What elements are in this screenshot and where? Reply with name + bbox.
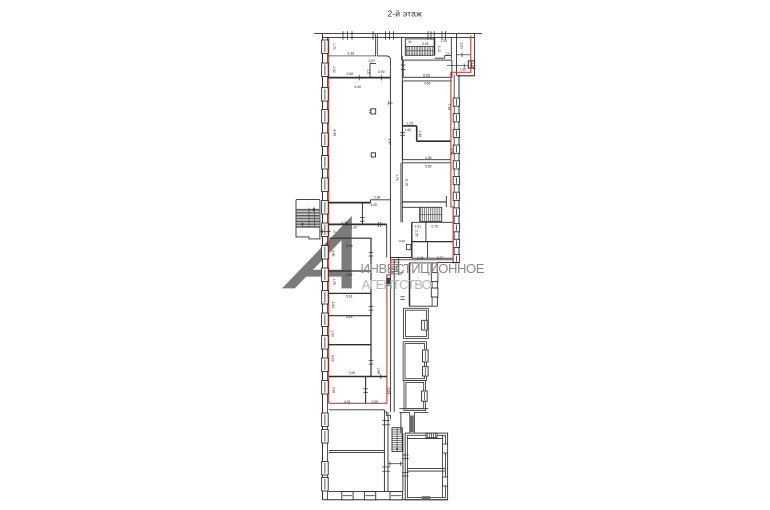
svg-text:4.51: 4.51	[344, 400, 351, 404]
svg-text:9.47: 9.47	[387, 138, 391, 145]
svg-text:3.26: 3.26	[370, 203, 377, 207]
svg-text:6.59: 6.59	[425, 165, 432, 169]
svg-text:3.24: 3.24	[386, 388, 390, 395]
svg-text:1.25: 1.25	[440, 39, 447, 43]
svg-text:1.5: 1.5	[366, 69, 370, 74]
svg-text:5.82: 5.82	[346, 273, 353, 277]
svg-text:1.46: 1.46	[417, 256, 424, 260]
svg-text:6.40: 6.40	[354, 85, 361, 89]
svg-text:3.03: 3.03	[422, 42, 429, 46]
svg-text:3.77: 3.77	[437, 256, 444, 260]
svg-text:2-й этаж: 2-й этаж	[387, 8, 422, 18]
svg-text:1.61: 1.61	[415, 224, 422, 228]
svg-text:0.57: 0.57	[369, 59, 376, 63]
svg-text:ИНВЕСТИЦИОННОЕ: ИНВЕСТИЦИОННОЕ	[361, 261, 485, 276]
svg-text:8.86: 8.86	[346, 244, 353, 248]
svg-text:0.90: 0.90	[378, 70, 385, 74]
svg-text:1.29: 1.29	[406, 121, 413, 125]
svg-text:1.60: 1.60	[405, 128, 412, 132]
svg-text:6.38: 6.38	[348, 52, 355, 56]
svg-text:1.52: 1.52	[332, 66, 336, 73]
svg-text:5.63: 5.63	[346, 315, 353, 319]
svg-text:2.96: 2.96	[450, 149, 454, 156]
svg-text:3.90: 3.90	[332, 387, 336, 394]
svg-text:1x: 1x	[446, 51, 450, 55]
svg-text:2.88: 2.88	[371, 400, 378, 404]
svg-text:2.12: 2.12	[437, 46, 441, 53]
svg-text:5.61: 5.61	[346, 294, 353, 298]
svg-text:4.38: 4.38	[425, 156, 432, 160]
svg-text:2.84: 2.84	[374, 196, 381, 200]
svg-text:АГЕНТСТВО: АГЕНТСТВО	[362, 277, 433, 292]
svg-text:4.08: 4.08	[341, 221, 348, 225]
svg-text:5.46: 5.46	[347, 72, 354, 76]
svg-text:6.08: 6.08	[423, 73, 430, 77]
svg-text:4.50: 4.50	[424, 82, 431, 86]
svg-text:8.43: 8.43	[332, 130, 336, 137]
svg-text:1.73: 1.73	[332, 43, 336, 50]
svg-text:6.19: 6.19	[405, 179, 409, 186]
svg-text:7.94: 7.94	[447, 104, 451, 111]
svg-text:1.75: 1.75	[332, 278, 336, 285]
svg-text:1.50: 1.50	[459, 42, 463, 49]
svg-text:1.46: 1.46	[418, 131, 422, 138]
svg-text:1.88: 1.88	[377, 367, 381, 374]
svg-text:2.05: 2.05	[415, 230, 419, 237]
svg-text:1.75: 1.75	[395, 174, 399, 181]
svg-text:0.85: 0.85	[471, 62, 475, 69]
svg-text:-0.90: -0.90	[398, 239, 405, 243]
svg-text:3x: 3x	[408, 40, 412, 44]
svg-text:4.95: 4.95	[331, 250, 335, 257]
svg-text:0.76: 0.76	[432, 224, 439, 228]
svg-text:2.80: 2.80	[331, 302, 335, 309]
svg-text:1.90: 1.90	[331, 330, 335, 337]
svg-text:4.23: 4.23	[331, 355, 335, 362]
svg-text:1.42: 1.42	[351, 226, 358, 230]
svg-text:7.69: 7.69	[348, 371, 355, 375]
svg-text:1.60: 1.60	[460, 68, 467, 72]
